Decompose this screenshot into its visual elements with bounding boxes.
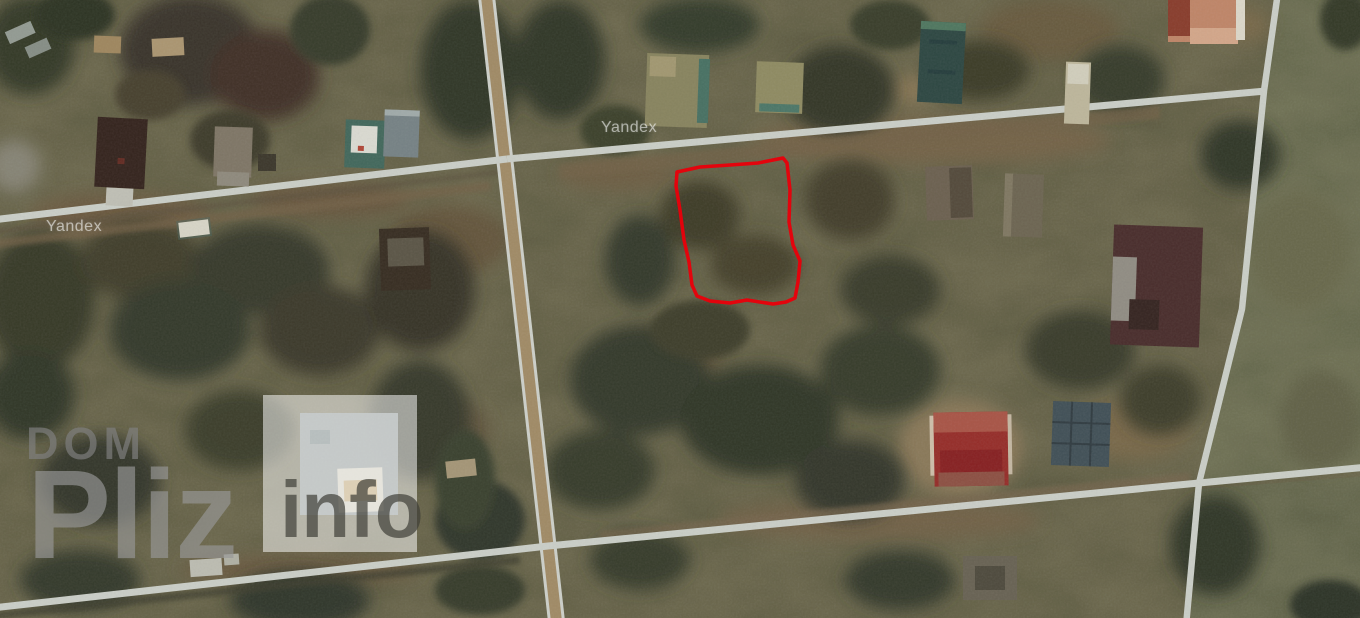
watermark-highlight-box [263, 395, 417, 552]
satellite-map[interactable]: Yandex Yandex DOM Pliz info [0, 0, 1360, 618]
satellite-imagery [0, 0, 1360, 618]
tint-overlay [0, 0, 1360, 618]
